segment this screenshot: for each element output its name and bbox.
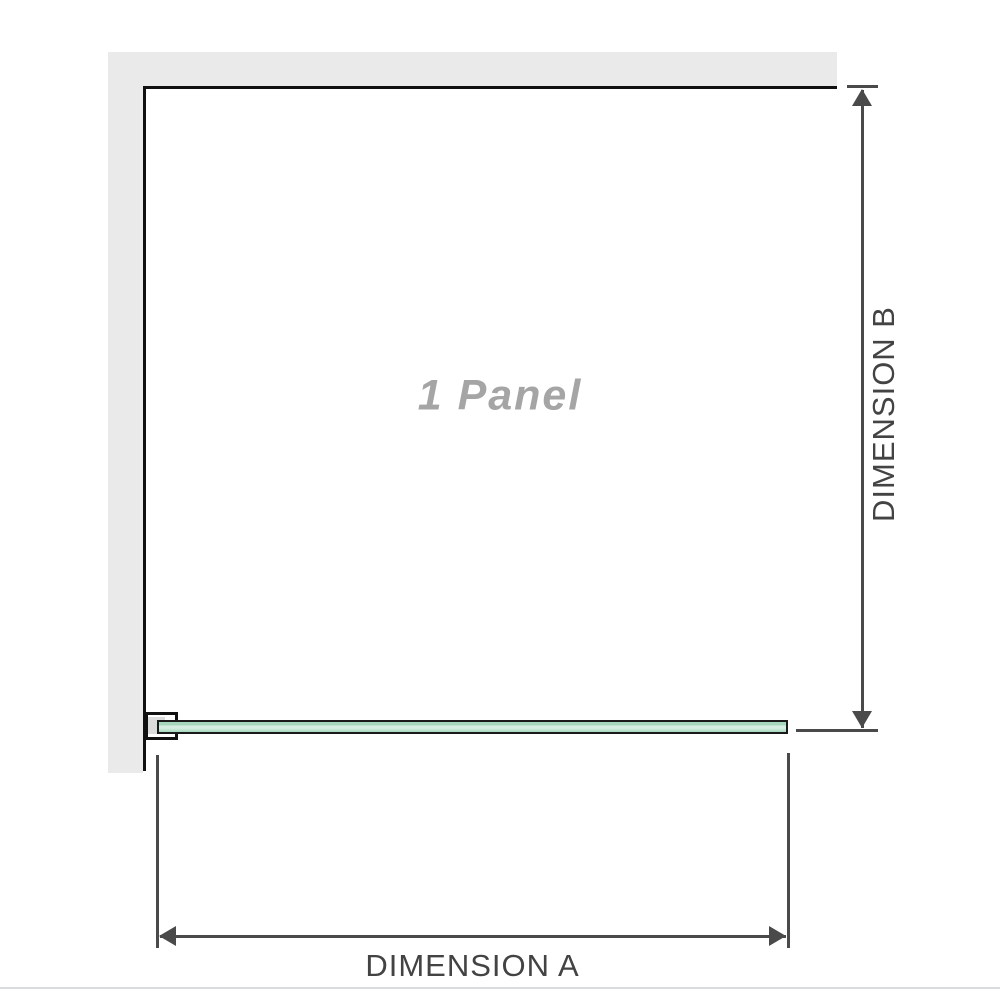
wall-top-strip bbox=[108, 52, 837, 86]
panel-count-label: 1 Panel bbox=[418, 372, 583, 421]
dimension-b-line bbox=[861, 90, 864, 728]
dimension-a-left-extension bbox=[156, 755, 159, 948]
glass-panel-bar bbox=[157, 720, 788, 734]
dimension-a-right-extension bbox=[787, 753, 790, 948]
arrow-left-icon bbox=[159, 926, 176, 946]
panel-outline-top bbox=[143, 86, 837, 89]
dimension-b-top-tick bbox=[847, 85, 878, 88]
dimension-a-line bbox=[160, 935, 786, 938]
bottom-rule bbox=[0, 987, 1000, 989]
wall-left-strip bbox=[108, 52, 143, 773]
arrow-down-icon bbox=[852, 711, 872, 728]
dimension-b-label: DIMENSION B bbox=[866, 306, 902, 522]
arrow-right-icon bbox=[769, 926, 786, 946]
shower-panel-diagram: 1 Panel DIMENSION B DIMENSION A bbox=[0, 0, 1000, 1000]
panel-outline-left bbox=[143, 86, 146, 771]
arrow-up-icon bbox=[852, 89, 872, 106]
dimension-b-bottom-tick bbox=[796, 729, 878, 732]
dimension-a-label: DIMENSION A bbox=[157, 948, 788, 984]
